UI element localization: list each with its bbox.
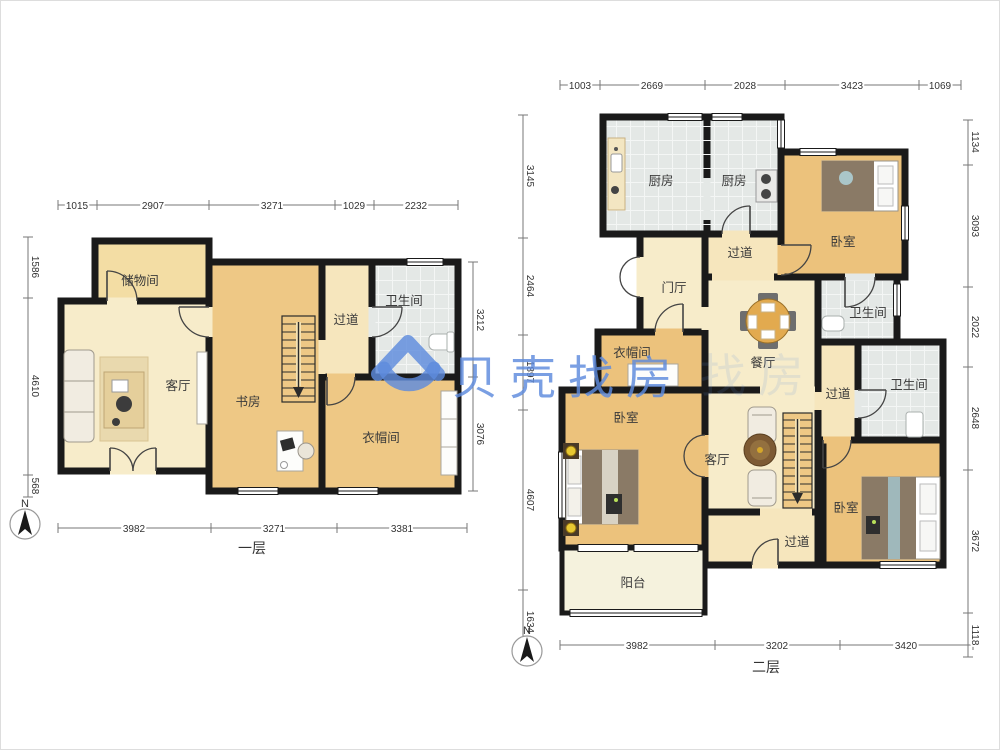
f2-dim-right-3: 2648 bbox=[969, 407, 980, 430]
f1-toilet bbox=[429, 332, 454, 352]
f2-kitchen-tiles bbox=[607, 121, 778, 231]
f2-dim-top-0: 1003 bbox=[569, 81, 592, 92]
f2-label-balcony: 阳台 bbox=[620, 575, 645, 590]
f1-dim-left-2: 568 bbox=[29, 478, 40, 495]
f2-dim-left-3: 4607 bbox=[524, 489, 535, 512]
f2-dim-bottom-0: 3982 bbox=[626, 641, 649, 652]
f2-label-bath-top: 卫生间 bbox=[849, 306, 887, 320]
f2-dim-top-2: 2028 bbox=[734, 81, 757, 92]
f2-label-corridor-top: 过道 bbox=[727, 246, 753, 260]
f2-living-chairs bbox=[744, 407, 776, 506]
f1-compass-n: N bbox=[21, 498, 29, 510]
f1-label-living: 客厅 bbox=[165, 378, 190, 393]
watermark-echo-text: 找房 bbox=[700, 350, 816, 402]
f1-stairs bbox=[282, 316, 315, 402]
f1-dim-left-0: 1586 bbox=[29, 256, 40, 279]
floor2-title: 二层 bbox=[752, 659, 780, 675]
f1-dim-top-3: 1029 bbox=[343, 201, 366, 212]
f2-dim-top-4: 1069 bbox=[929, 81, 952, 92]
f2-dim-left-0: 3145 bbox=[524, 165, 535, 188]
f2-label-bedroom-right: 卧室 bbox=[833, 500, 858, 515]
f2-label-kitchen2: 厨房 bbox=[721, 173, 746, 188]
f1-dim-bottom-2: 3381 bbox=[391, 524, 414, 535]
f1-dim-top-2: 3271 bbox=[261, 201, 284, 212]
f1-tv-bench bbox=[197, 352, 207, 424]
floorplan-svg: 储物间 客厅 书房 过道 卫生间 衣帽间 1015 2907 3271 1029… bbox=[0, 0, 1000, 750]
f2-dim-right-0: 1134 bbox=[969, 131, 980, 153]
f1-dim-right-1: 3076 bbox=[474, 423, 485, 446]
f2-stove bbox=[756, 170, 777, 202]
f2-dim-bottom-2: 3420 bbox=[895, 641, 918, 652]
f1-dim-right-0: 3212 bbox=[474, 309, 485, 332]
f2-kitchen-counter bbox=[608, 138, 625, 210]
f2-sink-right bbox=[906, 412, 923, 437]
watermark-brand-text: 贝壳找房 bbox=[452, 352, 684, 404]
f1-sofa bbox=[64, 350, 94, 442]
f2-bed-right bbox=[862, 477, 940, 559]
f2-label-bedroom-left: 卧室 bbox=[613, 410, 638, 425]
f1-dim-top-0: 1015 bbox=[66, 201, 89, 212]
f1-label-bath: 卫生间 bbox=[385, 294, 423, 308]
floor1-title: 一层 bbox=[238, 540, 266, 556]
f2-compass-n: N bbox=[523, 625, 531, 637]
f2-label-corridor-right: 过道 bbox=[825, 387, 851, 401]
f1-dim-top-1: 2907 bbox=[142, 201, 165, 212]
f1-passage-hall-study bbox=[319, 340, 326, 374]
f2-stairs bbox=[783, 413, 812, 508]
f2-bed-left bbox=[563, 443, 638, 536]
f2-dim-bottom-1: 3202 bbox=[766, 641, 789, 652]
f2-bed-top bbox=[822, 161, 898, 211]
f2-kitchen-divider-opening bbox=[704, 178, 711, 220]
f2-dim-top-3: 3423 bbox=[841, 81, 864, 92]
f2-toilet-top bbox=[822, 316, 844, 331]
f2-label-bedroom-top: 卧室 bbox=[830, 234, 855, 249]
f1-dim-bottom-1: 3271 bbox=[263, 524, 286, 535]
f1-dim-top-4: 2232 bbox=[405, 201, 428, 212]
f1-label-cloak: 衣帽间 bbox=[362, 430, 400, 445]
floor1-plan: 储物间 客厅 书房 过道 卫生间 衣帽间 bbox=[61, 241, 458, 495]
f2-dim-right-2: 2022 bbox=[969, 316, 980, 339]
f2-label-kitchen1: 厨房 bbox=[648, 173, 673, 188]
f1-label-study: 书房 bbox=[235, 394, 260, 409]
f2-dim-right-5: 1118 bbox=[969, 625, 980, 646]
f2-dim-top-1: 2669 bbox=[641, 81, 664, 92]
f2-label-bath-right: 卫生间 bbox=[890, 378, 928, 392]
f2-dim-right-1: 3093 bbox=[969, 215, 980, 238]
f1-label-hallway: 过道 bbox=[333, 313, 359, 327]
f2-label-foyer: 门厅 bbox=[661, 280, 686, 295]
f1-dim-bottom-0: 3982 bbox=[123, 524, 146, 535]
f2-dim-right-4: 3672 bbox=[969, 530, 980, 553]
floorplan-canvas: 储物间 客厅 书房 过道 卫生间 衣帽间 1015 2907 3271 1029… bbox=[0, 0, 1000, 750]
f2-label-corridor-bottom: 过道 bbox=[784, 535, 810, 549]
f1-dim-left-1: 4610 bbox=[29, 375, 40, 398]
f2-dim-left-1: 2464 bbox=[524, 275, 535, 298]
f1-label-storage: 储物间 bbox=[121, 273, 159, 288]
f2-label-living: 客厅 bbox=[704, 452, 729, 467]
f1-rug-coffee-table bbox=[100, 357, 148, 441]
